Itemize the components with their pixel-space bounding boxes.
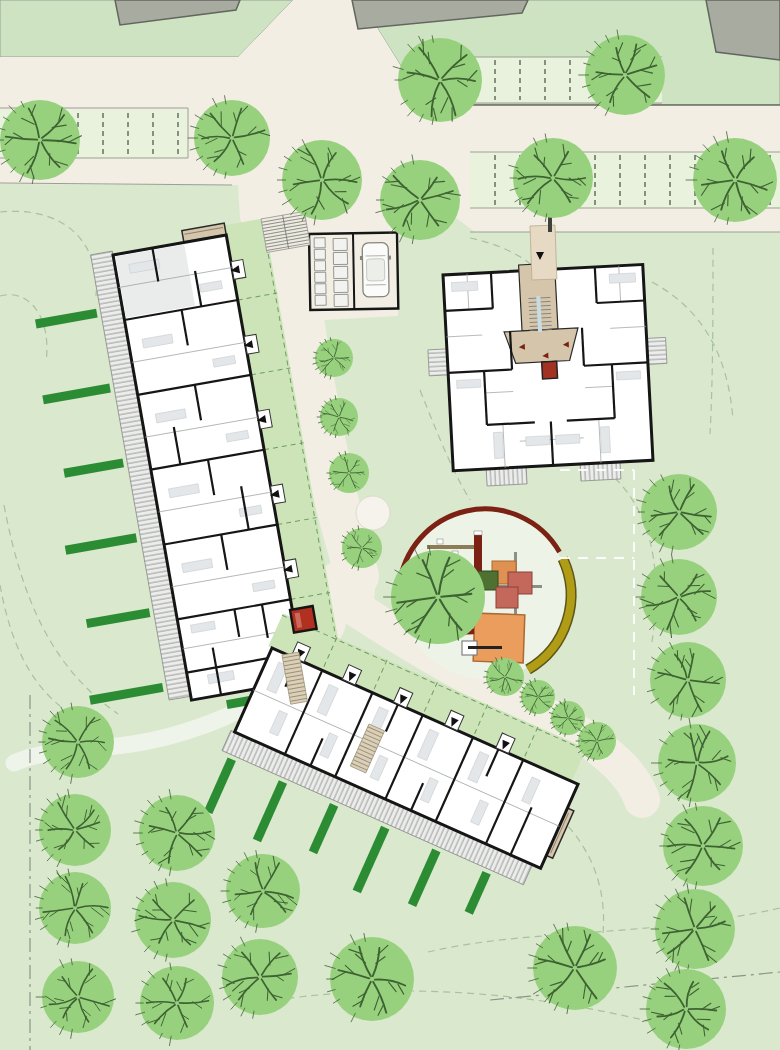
tree-twig [89,964,90,976]
car-mirror [388,256,391,260]
climb-platform [496,587,518,608]
tree-crown [391,550,485,644]
slide-end [474,531,482,535]
paved-circle [356,496,390,530]
balance-beam [427,545,475,549]
tree-twig [182,932,183,942]
utility-box-body [290,606,317,633]
furniture [457,379,481,388]
scene-root [0,0,780,1050]
car-roof [366,259,384,281]
tree-crown [641,474,717,550]
tree-crown [693,138,777,222]
bike-locker [314,261,325,271]
tree-crown [380,160,460,240]
tree-crown [222,939,298,1015]
tree-crown [330,937,414,1021]
bike-locker [315,295,326,305]
tree-twig [192,813,204,814]
elevator-shaft [542,361,558,379]
existing-building [706,0,780,60]
bike-locker [314,238,325,248]
bike-locker [333,252,347,264]
parked-car [360,243,392,298]
tree-crown [655,889,735,969]
bike-locker [334,266,348,278]
play-element [437,539,443,544]
furniture [451,281,477,291]
tree-twig [461,45,462,60]
furniture [600,427,610,453]
site-plan-drawing [0,0,780,1050]
apartment-building [424,258,673,489]
bike-locker [315,272,326,282]
furniture [609,273,635,283]
utility-box [290,606,317,633]
tree-crown [641,559,717,635]
tree-twig [690,478,691,491]
furniture [556,434,580,444]
furniture [526,436,550,446]
tree-crown [320,398,358,436]
balcony [647,337,667,364]
external-stair [261,211,310,252]
carport-bike-shed [309,232,398,310]
bike-locker [333,238,347,250]
tree-crown [42,961,114,1033]
tree-crown [521,680,555,714]
tree-crown [658,724,736,802]
tree-crown [650,642,726,718]
sandbox [473,613,525,663]
car-mirror [360,256,363,260]
play-bar [468,646,502,649]
tree-crown [486,658,524,696]
bike-locker [334,294,348,306]
balcony [428,349,448,376]
tree-crown [533,926,617,1010]
site-plan-page [0,0,780,1050]
tree-crown [585,35,665,115]
furniture [616,371,640,380]
tree-crown [0,100,80,180]
bike-locker [314,249,325,259]
carport-divider [353,233,354,309]
tree-crown [329,453,369,493]
bike-locker [315,284,326,294]
tree-crown [135,882,211,958]
tree-crown [39,872,111,944]
bike-locker [334,280,348,292]
tree-twig [710,902,711,911]
furniture [493,432,503,458]
tree-twig [67,1013,68,1021]
tree-crown [226,854,300,928]
